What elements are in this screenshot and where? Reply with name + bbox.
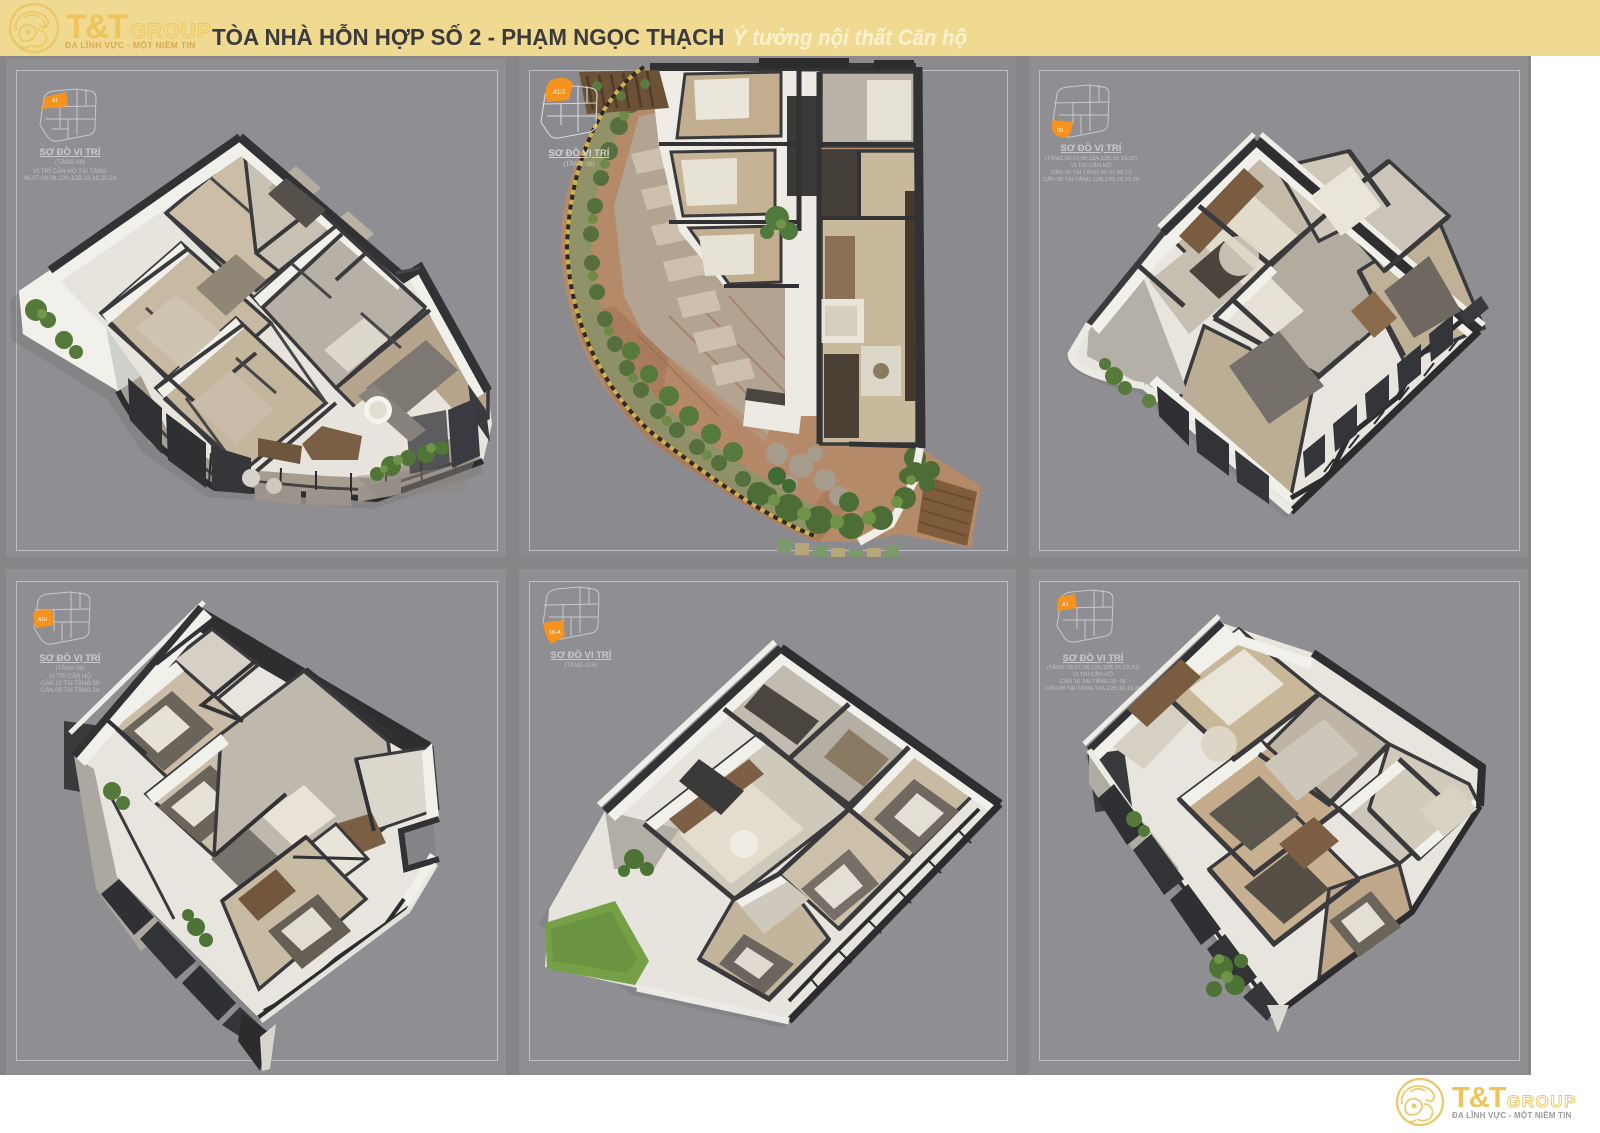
svg-text:(TẦNG 06,07,08,12A,12B,16,19,2: (TẦNG 06,07,08,12A,12B,16,19,20) [1047,664,1139,671]
svg-text:CĂN 08 TẠI TẦNG 12A,12B,16,19,: CĂN 08 TẠI TẦNG 12A,12B,16,19,20 [1043,176,1139,183]
svg-text:(TẦNG 06,07,08,12A,12B,16,19,2: (TẦNG 06,07,08,12A,12B,16,19,20) [1045,155,1137,162]
svg-text:SƠ ĐỒ VỊ TRÍ: SƠ ĐỒ VỊ TRÍ [549,147,610,159]
svg-text:(TẦNG 06): (TẦNG 06) [55,159,85,166]
svg-text:VỊ TRÍ CĂN HỘ: VỊ TRÍ CĂN HỘ [1073,671,1114,678]
svg-text:T&T: T&T [1452,1082,1507,1114]
svg-text:SƠ ĐỒ VỊ TRÍ: SƠ ĐỒ VỊ TRÍ [1061,142,1122,154]
svg-text:SƠ ĐỒ VỊ TRÍ: SƠ ĐỒ VỊ TRÍ [40,146,101,158]
svg-text:06,07,08,09,12A,12B,16,19,20,2: 06,07,08,09,12A,12B,16,19,20,24 [24,175,117,182]
svg-text:10-A: 10-A [549,630,561,636]
svg-text:CĂN 09 TẠI TẦNG 24: CĂN 09 TẠI TẦNG 24 [41,687,100,694]
svg-text:(TẦNG 09): (TẦNG 09) [55,665,84,672]
svg-text:VỊ TRÍ CĂN HỘ: VỊ TRÍ CĂN HỘ [49,673,91,680]
svg-text:GROUP: GROUP [1507,1092,1577,1111]
svg-text:SƠ ĐỒ VỊ TRÍ: SƠ ĐỒ VỊ TRÍ [40,652,101,664]
svg-text:ĐA LĨNH VỰC - MỘT NIỀM TIN: ĐA LĨNH VỰC - MỘT NIỀM TIN [1452,1110,1572,1120]
svg-text:A1: A1 [1062,602,1069,608]
svg-text:A10: A10 [38,617,47,623]
svg-text:CĂN 09 TẠI TẦNG 06,07,08,12: CĂN 09 TẠI TẦNG 06,07,08,12 [1051,169,1132,176]
svg-text:(TẦNG G/A): (TẦNG G/A) [565,662,598,669]
svg-text:09: 09 [1057,128,1063,134]
svg-text:SƠ ĐỒ VỊ TRÍ: SƠ ĐỒ VỊ TRÍ [551,649,612,661]
svg-text:VỊ TRÍ CĂN HỘ: VỊ TRÍ CĂN HỘ [1071,162,1112,169]
svg-text:CĂN 09 TẠI TẦNG 12A,12B,16,19,: CĂN 09 TẠI TẦNG 12A,12B,16,19,20 [1045,685,1141,692]
svg-text:SƠ ĐỒ VỊ TRÍ: SƠ ĐỒ VỊ TRÍ [1063,652,1124,664]
svg-text:A1: A1 [52,98,58,104]
svg-text:CĂN 10 TẠI TẦNG 09: CĂN 10 TẠI TẦNG 09 [41,680,100,687]
svg-text:CĂN 10 TẠI TẦNG 09~06: CĂN 10 TẠI TẦNG 09~06 [1060,678,1126,685]
svg-text:A1/2: A1/2 [553,90,566,96]
svg-text:ĐA LĨNH VỰC - MỘT NIỀM TIN: ĐA LĨNH VỰC - MỘT NIỀM TIN [65,39,196,50]
svg-text:VỊ TRÍ CĂN HỘ TẠI TẦNG: VỊ TRÍ CĂN HỘ TẠI TẦNG [33,168,106,175]
